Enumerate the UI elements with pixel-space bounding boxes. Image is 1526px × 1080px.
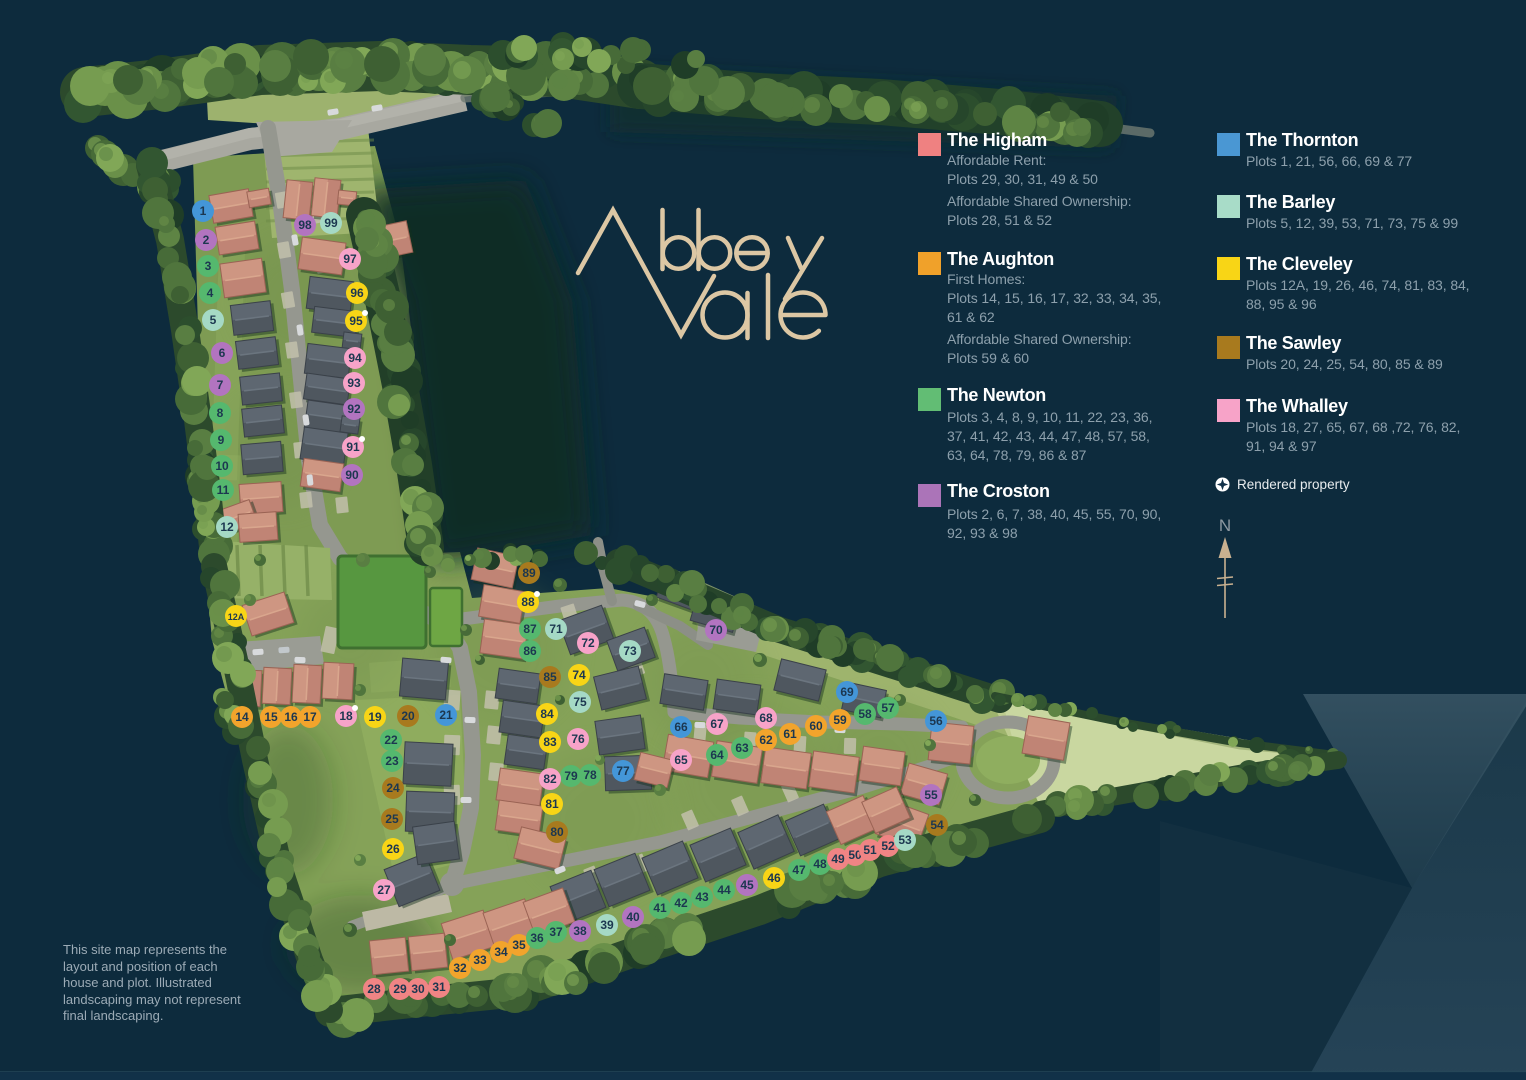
svg-text:94: 94 [348, 351, 362, 365]
svg-text:27: 27 [377, 883, 391, 897]
svg-text:23: 23 [385, 754, 399, 768]
svg-text:34: 34 [494, 945, 508, 959]
svg-text:31: 31 [432, 980, 446, 994]
svg-text:91: 91 [346, 440, 360, 454]
svg-text:44: 44 [717, 883, 731, 897]
svg-text:51: 51 [863, 843, 877, 857]
svg-text:86: 86 [523, 644, 537, 658]
svg-text:10: 10 [215, 459, 229, 473]
svg-text:32: 32 [453, 961, 467, 975]
svg-text:15: 15 [264, 710, 278, 724]
svg-text:65: 65 [674, 753, 688, 767]
svg-text:87: 87 [523, 622, 537, 636]
svg-text:78: 78 [583, 768, 597, 782]
svg-text:4: 4 [207, 286, 214, 300]
svg-text:47: 47 [792, 863, 806, 877]
svg-text:73: 73 [623, 644, 637, 658]
svg-text:98: 98 [298, 218, 312, 232]
svg-text:90: 90 [345, 468, 359, 482]
svg-text:19: 19 [368, 710, 382, 724]
svg-text:25: 25 [385, 812, 399, 826]
svg-text:8: 8 [217, 406, 224, 420]
svg-text:53: 53 [898, 833, 912, 847]
svg-text:75: 75 [573, 695, 587, 709]
svg-text:56: 56 [929, 714, 943, 728]
svg-text:11: 11 [217, 483, 230, 497]
svg-text:45: 45 [740, 878, 754, 892]
svg-text:97: 97 [343, 252, 357, 266]
svg-text:21: 21 [439, 708, 453, 722]
svg-text:7: 7 [217, 378, 224, 392]
svg-text:49: 49 [831, 852, 845, 866]
svg-text:81: 81 [545, 797, 559, 811]
svg-text:67: 67 [710, 717, 724, 731]
svg-text:85: 85 [543, 670, 557, 684]
svg-text:58: 58 [858, 707, 872, 721]
svg-text:2: 2 [203, 233, 210, 247]
svg-text:3: 3 [205, 259, 212, 273]
svg-text:16: 16 [284, 710, 298, 724]
svg-text:64: 64 [710, 748, 724, 762]
svg-text:40: 40 [626, 910, 640, 924]
svg-text:33: 33 [473, 953, 487, 967]
svg-text:36: 36 [530, 931, 544, 945]
svg-text:30: 30 [411, 982, 425, 996]
svg-text:42: 42 [674, 896, 688, 910]
svg-text:52: 52 [881, 839, 895, 853]
svg-text:70: 70 [709, 623, 723, 637]
svg-text:17: 17 [303, 710, 317, 724]
svg-text:55: 55 [924, 788, 938, 802]
svg-text:41: 41 [653, 901, 667, 915]
svg-text:18: 18 [339, 709, 353, 723]
svg-text:46: 46 [767, 871, 781, 885]
svg-text:12A: 12A [228, 612, 245, 622]
svg-text:26: 26 [386, 842, 400, 856]
svg-text:80: 80 [550, 825, 564, 839]
svg-text:95: 95 [349, 314, 363, 328]
svg-text:54: 54 [930, 818, 944, 832]
svg-text:63: 63 [735, 741, 749, 755]
svg-text:28: 28 [367, 982, 381, 996]
svg-text:60: 60 [809, 719, 823, 733]
svg-text:62: 62 [759, 733, 773, 747]
svg-text:38: 38 [573, 924, 587, 938]
svg-text:6: 6 [219, 346, 226, 360]
svg-text:43: 43 [695, 890, 709, 904]
svg-text:77: 77 [616, 764, 630, 778]
svg-text:96: 96 [350, 286, 364, 300]
svg-text:79: 79 [564, 769, 578, 783]
svg-text:14: 14 [235, 710, 249, 724]
svg-text:29: 29 [393, 982, 407, 996]
svg-text:74: 74 [572, 668, 586, 682]
svg-text:59: 59 [833, 713, 847, 727]
svg-text:69: 69 [840, 685, 854, 699]
svg-text:9: 9 [218, 433, 225, 447]
svg-text:84: 84 [540, 707, 554, 721]
svg-text:66: 66 [674, 720, 688, 734]
svg-text:22: 22 [384, 733, 398, 747]
svg-text:N: N [1219, 516, 1231, 535]
svg-text:35: 35 [512, 938, 526, 952]
svg-text:71: 71 [549, 622, 563, 636]
svg-text:24: 24 [386, 781, 400, 795]
svg-text:37: 37 [549, 925, 563, 939]
svg-text:76: 76 [571, 732, 585, 746]
svg-text:12: 12 [220, 520, 234, 534]
svg-text:93: 93 [347, 376, 361, 390]
svg-text:92: 92 [347, 402, 361, 416]
svg-text:1: 1 [200, 204, 207, 218]
svg-text:5: 5 [210, 313, 217, 327]
svg-text:99: 99 [324, 216, 338, 230]
svg-text:83: 83 [543, 735, 557, 749]
svg-text:20: 20 [401, 709, 415, 723]
svg-text:39: 39 [600, 918, 614, 932]
svg-text:82: 82 [543, 772, 557, 786]
svg-text:89: 89 [522, 566, 536, 580]
svg-text:88: 88 [521, 595, 535, 609]
svg-text:61: 61 [783, 727, 797, 741]
svg-text:48: 48 [813, 857, 827, 871]
svg-text:68: 68 [759, 711, 773, 725]
svg-text:57: 57 [881, 701, 895, 715]
svg-text:72: 72 [581, 636, 595, 650]
